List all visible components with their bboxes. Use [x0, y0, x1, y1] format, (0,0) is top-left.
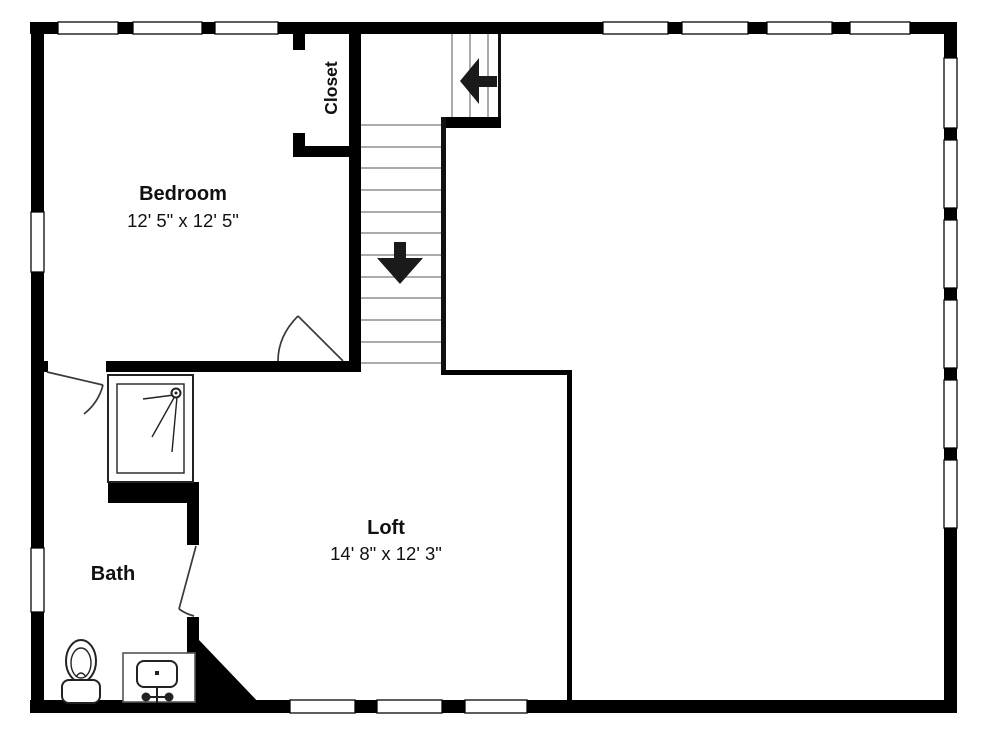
angled-wall	[187, 640, 263, 707]
wall	[31, 272, 44, 548]
wall	[31, 612, 44, 712]
floor-plan-drawing: Bedroom 12' 5" x 12' 5" Closet Bath Loft…	[0, 0, 1000, 732]
wall	[202, 22, 215, 34]
loft-bath-door-leaf	[179, 546, 196, 609]
wall	[355, 700, 377, 713]
window	[944, 220, 957, 288]
bedroom-door-leaf	[298, 316, 343, 361]
shower-icon	[108, 375, 193, 482]
bath-label: Bath	[91, 563, 135, 585]
window	[215, 22, 278, 34]
interior-walls	[31, 22, 572, 707]
window	[944, 140, 957, 208]
window	[465, 700, 527, 713]
window	[31, 212, 44, 272]
wall	[106, 361, 361, 372]
wall	[944, 22, 957, 58]
wall	[944, 528, 957, 712]
window	[944, 460, 957, 528]
window	[850, 22, 910, 34]
window	[133, 22, 202, 34]
stair-edge	[441, 117, 446, 375]
bath-door-leaf	[47, 372, 103, 385]
room-labels: Bedroom 12' 5" x 12' 5" Closet Bath Loft…	[91, 61, 442, 585]
wall	[442, 700, 465, 713]
wall	[278, 22, 603, 34]
closet-label: Closet	[321, 61, 341, 115]
wall	[187, 498, 199, 545]
floor-plan-canvas: Bedroom 12' 5" x 12' 5" Closet Bath Loft…	[0, 0, 1000, 732]
window	[767, 22, 832, 34]
wall	[118, 22, 133, 34]
wall	[944, 128, 957, 140]
wall	[944, 448, 957, 460]
wall	[349, 22, 361, 372]
wall	[944, 368, 957, 380]
loft-label: Loft	[367, 517, 405, 539]
wall	[31, 22, 44, 212]
bath-door-swing	[84, 385, 103, 414]
window	[944, 300, 957, 368]
wall	[293, 146, 361, 157]
bathroom-fixtures	[62, 375, 195, 703]
loft-railing-wall	[567, 370, 572, 702]
loft-bath-door-swing	[179, 609, 194, 616]
wall	[31, 361, 48, 372]
wall	[441, 117, 501, 128]
window	[290, 700, 355, 713]
toilet-icon	[62, 640, 100, 703]
window	[377, 700, 442, 713]
window	[603, 22, 668, 34]
window	[31, 548, 44, 612]
wall	[944, 208, 957, 220]
stair-up-arrow-icon	[460, 58, 497, 104]
loft-dimensions: 14' 8" x 12' 3"	[330, 543, 442, 564]
wall	[108, 482, 199, 503]
window	[944, 58, 957, 128]
bedroom-door-swing	[278, 316, 298, 361]
wall	[748, 22, 767, 34]
bedroom-label: Bedroom	[139, 183, 227, 205]
bedroom-dimensions: 12' 5" x 12' 5"	[127, 210, 239, 231]
wall	[944, 288, 957, 300]
wall	[832, 22, 850, 34]
loft-railing-wall	[441, 370, 572, 375]
sink-icon	[123, 653, 195, 703]
window	[944, 380, 957, 448]
wall	[668, 22, 682, 34]
window	[58, 22, 118, 34]
wall	[293, 34, 305, 50]
window	[682, 22, 748, 34]
staircase	[361, 34, 497, 363]
stair-edge	[498, 34, 501, 117]
wall	[527, 700, 957, 713]
